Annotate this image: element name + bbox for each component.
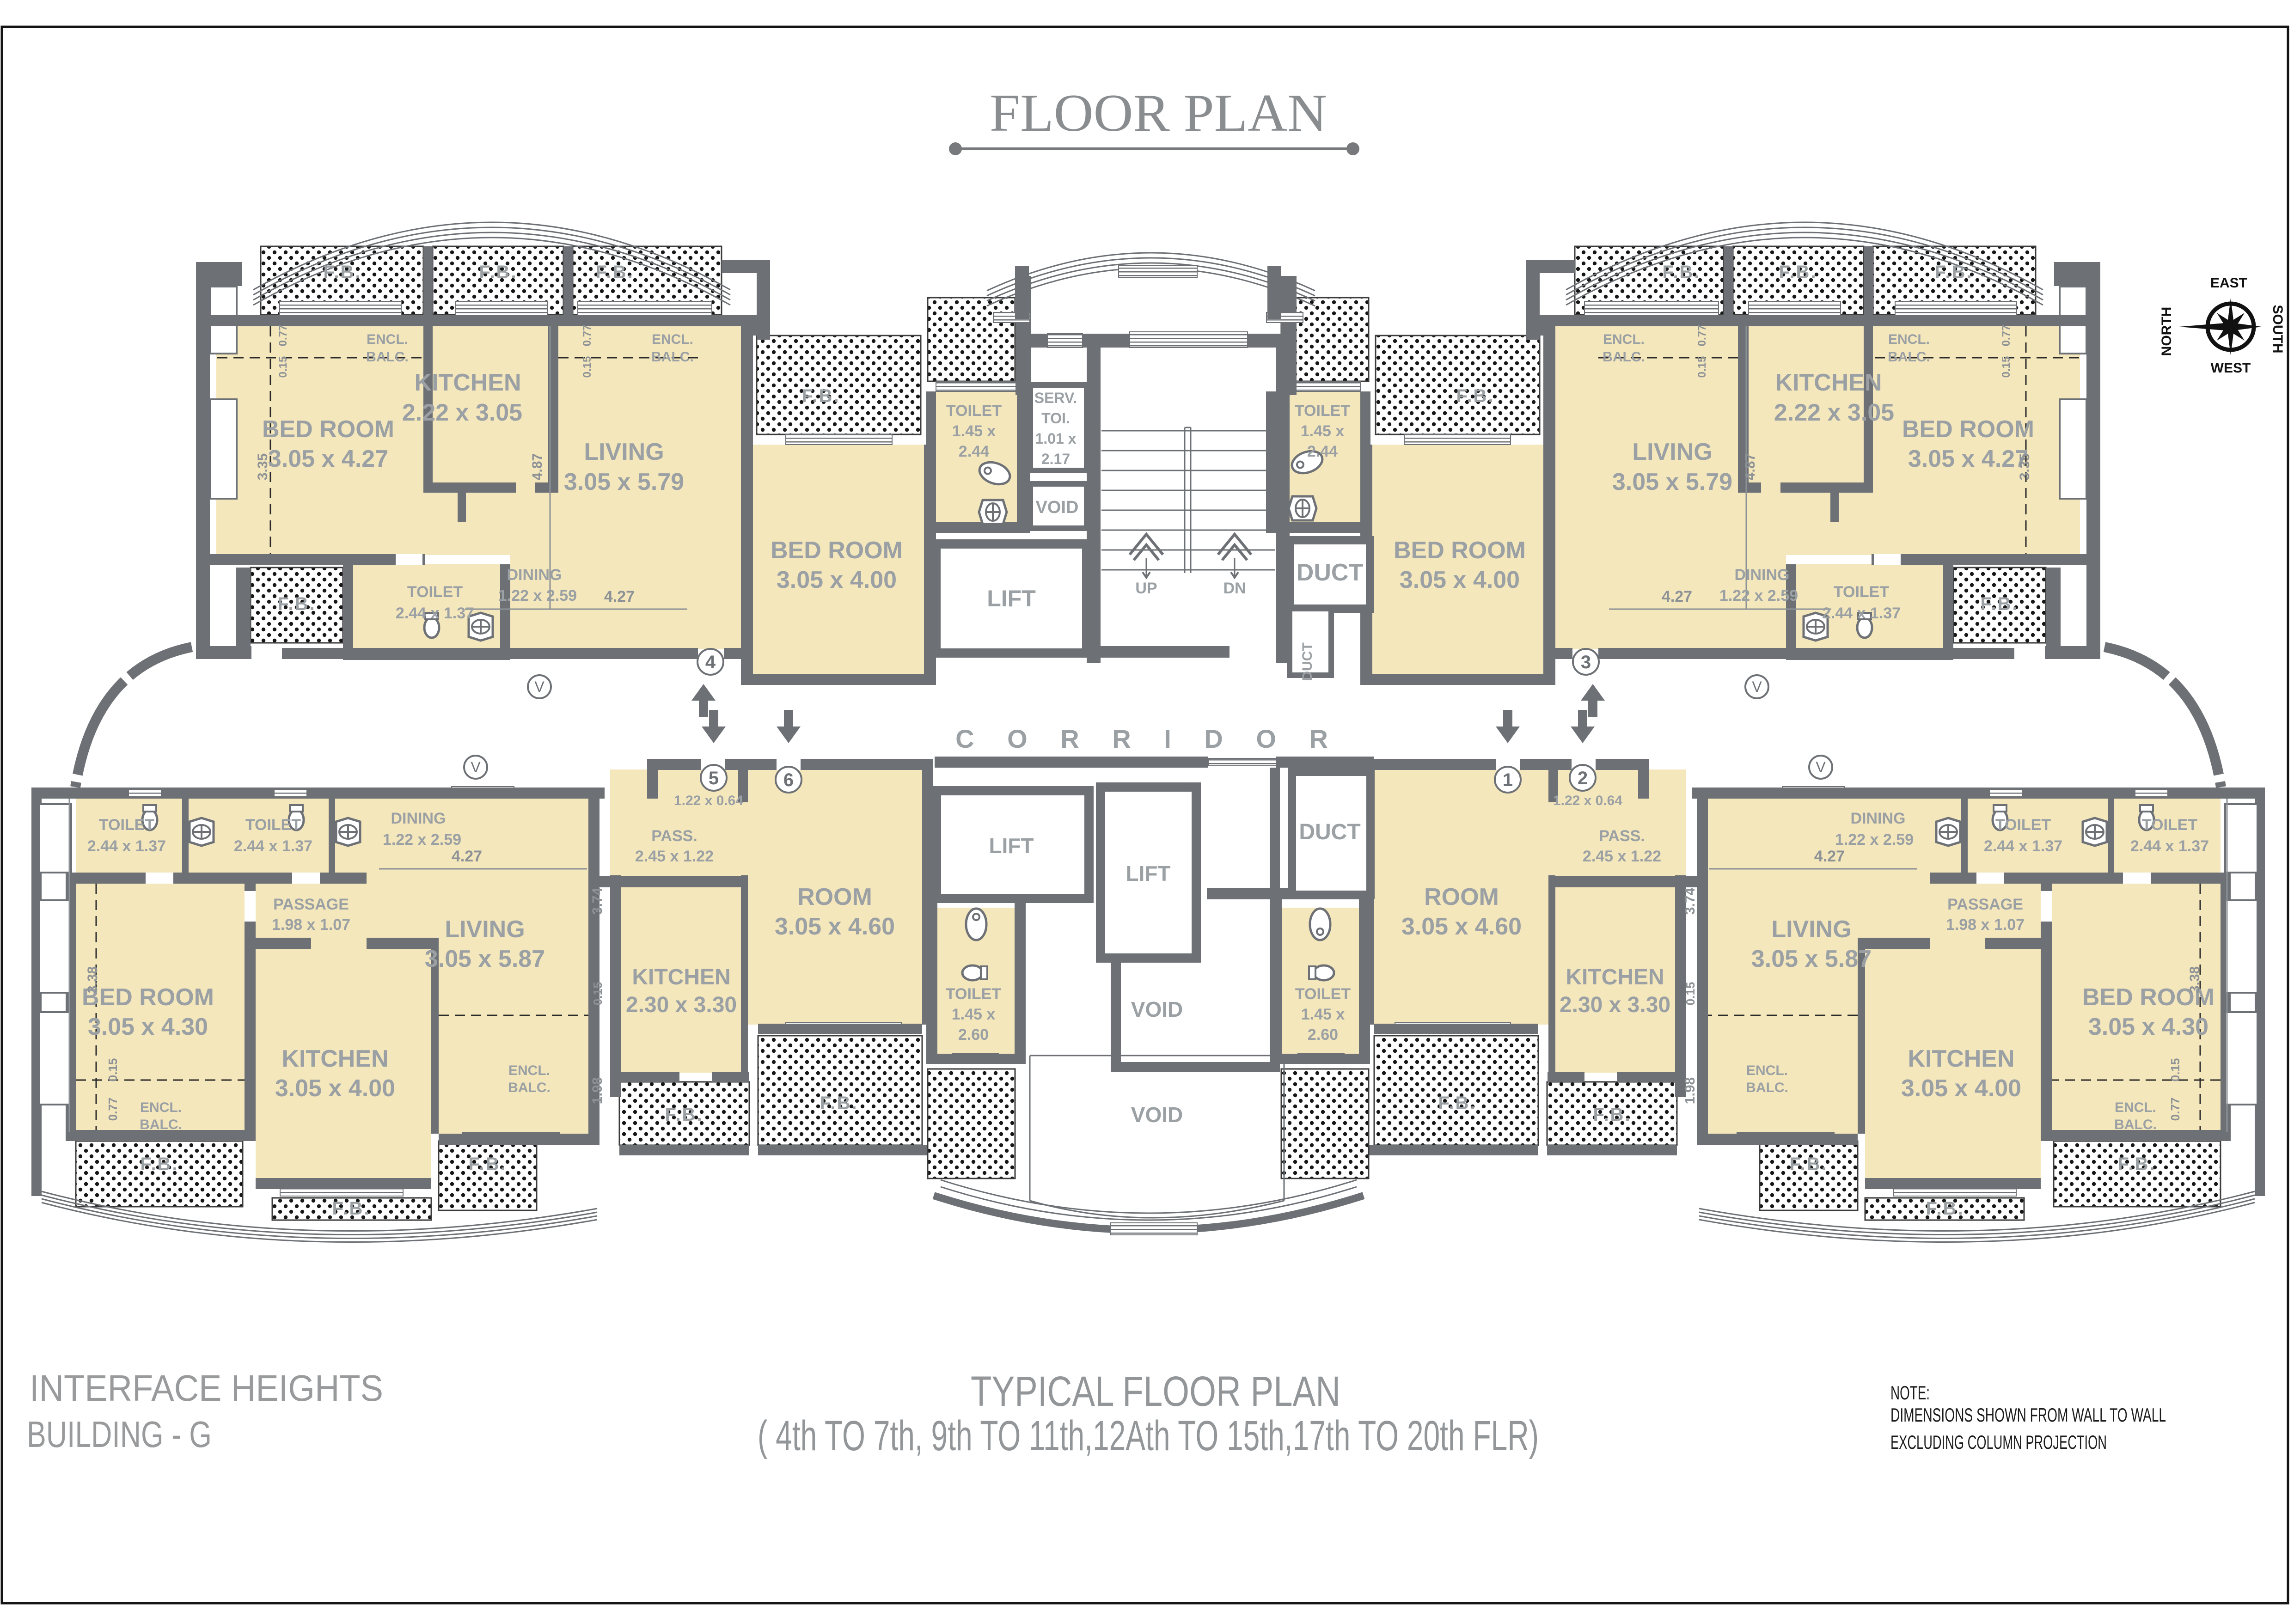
svg-text:DINING: DINING [507, 566, 562, 584]
svg-text:1.45 x: 1.45 x [952, 1006, 996, 1023]
svg-text:F.B.: F.B. [1779, 262, 1817, 282]
svg-text:0.77: 0.77 [2000, 325, 2013, 347]
svg-text:TOI.: TOI. [1041, 410, 1070, 427]
svg-text:3: 3 [1581, 652, 1591, 672]
svg-text:0.77: 0.77 [1696, 325, 1708, 347]
svg-text:DUCT: DUCT [1300, 642, 1315, 681]
svg-text:KITCHEN: KITCHEN [281, 1045, 388, 1072]
svg-text:3.05 x 4.27: 3.05 x 4.27 [268, 446, 388, 472]
svg-text:BED ROOM: BED ROOM [82, 984, 214, 1011]
svg-text:4.27: 4.27 [1662, 588, 1692, 605]
svg-text:F.B.: F.B. [277, 594, 316, 614]
svg-text:0.15: 0.15 [2168, 1058, 2182, 1082]
svg-text:VOID: VOID [1036, 498, 1079, 517]
svg-text:V: V [534, 678, 544, 695]
svg-text:BALC.: BALC. [651, 349, 694, 365]
svg-text:DINING: DINING [391, 810, 446, 827]
svg-text:LIVING: LIVING [1771, 916, 1851, 943]
svg-text:F.B.: F.B. [468, 1154, 507, 1174]
svg-text:TOILET: TOILET [1995, 816, 2051, 834]
svg-text:TOILET: TOILET [245, 816, 301, 834]
svg-text:SOUTH: SOUTH [2270, 305, 2285, 354]
svg-text:LIVING: LIVING [445, 916, 525, 943]
svg-text:0.15: 0.15 [2000, 356, 2013, 378]
svg-text:1.01 x: 1.01 x [1035, 430, 1077, 447]
svg-text:0.15: 0.15 [106, 1058, 120, 1082]
svg-text:( 4th TO 7th, 9th TO 11th,12At: ( 4th TO 7th, 9th TO 11th,12Ath TO 15th,… [758, 1412, 1539, 1459]
svg-text:1.22 x 2.59: 1.22 x 2.59 [1835, 831, 1914, 849]
svg-text:2.44 x 1.37: 2.44 x 1.37 [87, 837, 166, 855]
svg-text:BALC.: BALC. [1888, 349, 1930, 365]
svg-text:0.77: 0.77 [106, 1098, 120, 1121]
svg-text:LIVING: LIVING [584, 439, 664, 465]
svg-text:1.98 x 1.07: 1.98 x 1.07 [272, 916, 350, 934]
svg-text:2.44 x 1.37: 2.44 x 1.37 [1984, 837, 2062, 855]
svg-text:EAST: EAST [2210, 275, 2247, 291]
svg-text:F.B.: F.B. [665, 1105, 703, 1125]
svg-text:3.35: 3.35 [2017, 453, 2032, 480]
svg-text:ROOM: ROOM [797, 884, 872, 910]
svg-text:TOILET: TOILET [946, 402, 1002, 420]
svg-text:1.98: 1.98 [1682, 1077, 1698, 1104]
svg-text:TOILET: TOILET [99, 816, 154, 834]
svg-text:0.15: 0.15 [277, 356, 289, 378]
svg-text:3.38: 3.38 [2187, 966, 2202, 993]
svg-text:2.30 x 3.30: 2.30 x 3.30 [626, 993, 737, 1017]
svg-text:ROOM: ROOM [1424, 884, 1499, 910]
svg-text:V: V [471, 759, 481, 775]
svg-text:F.B.: F.B. [332, 1198, 370, 1219]
svg-text:LIVING: LIVING [1632, 439, 1712, 465]
svg-text:DUCT: DUCT [1299, 820, 1360, 844]
svg-text:TYPICAL FLOOR PLAN: TYPICAL FLOOR PLAN [971, 1368, 1340, 1415]
svg-text:BALC.: BALC. [1603, 349, 1645, 365]
svg-text:0.15: 0.15 [1683, 982, 1697, 1006]
svg-text:2.44 x 1.37: 2.44 x 1.37 [2130, 837, 2209, 855]
svg-text:ENCL.: ENCL. [1603, 332, 1645, 347]
svg-text:BED ROOM: BED ROOM [771, 537, 903, 564]
svg-text:1: 1 [1503, 770, 1513, 790]
svg-text:2.44 x 1.37: 2.44 x 1.37 [1822, 604, 1901, 622]
svg-text:BALC.: BALC. [140, 1117, 182, 1132]
svg-text:UP: UP [1135, 580, 1157, 597]
svg-text:3.05 x 4.00: 3.05 x 4.00 [777, 567, 897, 593]
svg-text:F.B.: F.B. [140, 1154, 178, 1174]
svg-text:3.05 x 4.30: 3.05 x 4.30 [88, 1013, 208, 1040]
svg-text:TOILET: TOILET [2142, 816, 2197, 834]
svg-text:BALC.: BALC. [366, 349, 409, 365]
svg-text:TOILET: TOILET [407, 583, 463, 601]
svg-text:NORTH: NORTH [2159, 307, 2174, 356]
svg-text:1.22 x 0.64: 1.22 x 0.64 [1553, 793, 1622, 808]
svg-text:LIFT: LIFT [987, 586, 1036, 611]
svg-text:F.B.: F.B. [595, 262, 634, 282]
svg-text:6: 6 [783, 770, 794, 790]
svg-text:KITCHEN: KITCHEN [414, 369, 521, 396]
svg-text:BUILDING - G: BUILDING - G [27, 1414, 212, 1455]
svg-text:3.05 x 5.87: 3.05 x 5.87 [1751, 946, 1872, 972]
svg-text:3.05 x 5.79: 3.05 x 5.79 [564, 469, 684, 495]
svg-text:1.22 x 2.59: 1.22 x 2.59 [383, 831, 461, 849]
svg-text:NOTE:: NOTE: [1890, 1382, 1930, 1404]
svg-text:2.60: 2.60 [1308, 1026, 1338, 1044]
svg-text:KITCHEN: KITCHEN [1566, 965, 1664, 989]
svg-text:F.B.: F.B. [1662, 262, 1701, 282]
svg-text:ENCL.: ENCL. [652, 332, 693, 347]
svg-text:4.27: 4.27 [452, 848, 482, 865]
svg-text:ENCL.: ENCL. [367, 332, 408, 347]
svg-text:F.B.: F.B. [820, 1093, 858, 1113]
svg-text:SERV.: SERV. [1034, 390, 1077, 406]
svg-text:5: 5 [709, 768, 719, 788]
svg-text:2.60: 2.60 [958, 1026, 989, 1044]
svg-text:1.45 x: 1.45 x [1301, 1006, 1345, 1023]
svg-text:0.15: 0.15 [591, 982, 605, 1006]
svg-text:3.35: 3.35 [255, 453, 270, 480]
svg-text:BALC.: BALC. [1746, 1080, 1788, 1095]
svg-text:WEST: WEST [2211, 360, 2251, 376]
svg-text:DIMENSIONS SHOWN FROM WALL TO: DIMENSIONS SHOWN FROM WALL TO WALL [1890, 1404, 2166, 1426]
svg-text:4.27: 4.27 [604, 588, 635, 605]
svg-text:DINING: DINING [1735, 566, 1790, 584]
svg-text:LIFT: LIFT [989, 834, 1034, 858]
svg-text:PASS.: PASS. [1599, 827, 1645, 845]
svg-text:4: 4 [705, 652, 716, 672]
svg-text:BED ROOM: BED ROOM [1394, 537, 1526, 564]
svg-text:LIFT: LIFT [1126, 861, 1170, 885]
svg-text:1.22 x 2.59: 1.22 x 2.59 [498, 587, 577, 604]
svg-text:4.27: 4.27 [1814, 848, 1845, 865]
svg-text:3.74: 3.74 [590, 887, 605, 915]
svg-text:TOILET: TOILET [1295, 985, 1351, 1003]
svg-text:2.44 x 1.37: 2.44 x 1.37 [396, 604, 474, 622]
svg-text:0.77: 0.77 [2168, 1098, 2182, 1121]
svg-text:F.B.: F.B. [1593, 1105, 1631, 1125]
svg-text:3.05 x 5.79: 3.05 x 5.79 [1612, 469, 1732, 495]
svg-text:PASS.: PASS. [651, 827, 697, 845]
svg-text:INTERFACE HEIGHTS: INTERFACE HEIGHTS [30, 1368, 383, 1409]
svg-text:TOILET: TOILET [1834, 583, 1889, 601]
svg-text:F.B.: F.B. [1934, 262, 1973, 282]
svg-text:1.45 x: 1.45 x [1301, 422, 1345, 440]
svg-text:3.05 x 4.60: 3.05 x 4.60 [775, 913, 895, 940]
svg-text:F.B.: F.B. [1456, 386, 1494, 406]
svg-text:BED ROOM: BED ROOM [262, 416, 394, 443]
svg-text:TOILET: TOILET [946, 985, 1001, 1003]
svg-text:3.05 x 4.00: 3.05 x 4.00 [1901, 1075, 2021, 1102]
svg-text:1.98 x 1.07: 1.98 x 1.07 [1946, 916, 2025, 934]
svg-text:2.22 x 3.05: 2.22 x 3.05 [1774, 399, 1894, 426]
svg-text:F.B.: F.B. [1789, 1154, 1828, 1174]
svg-text:1.98: 1.98 [590, 1077, 605, 1104]
svg-text:ENCL.: ENCL. [1746, 1063, 1788, 1078]
svg-text:4.87: 4.87 [1743, 453, 1758, 480]
svg-text:VOID: VOID [1131, 1103, 1183, 1127]
svg-text:2.45 x 1.22: 2.45 x 1.22 [635, 848, 714, 865]
svg-text:VOID: VOID [1131, 997, 1183, 1021]
svg-text:2.30 x 3.30: 2.30 x 3.30 [1560, 993, 1670, 1017]
svg-text:3.05 x 4.60: 3.05 x 4.60 [1401, 913, 1522, 940]
svg-text:3.05 x 4.30: 3.05 x 4.30 [2088, 1013, 2208, 1040]
svg-text:F.B.: F.B. [1980, 594, 2019, 614]
svg-text:F.B.: F.B. [323, 262, 361, 282]
svg-text:PASSAGE: PASSAGE [273, 896, 349, 913]
svg-text:3.74: 3.74 [1682, 887, 1698, 915]
svg-text:KITCHEN: KITCHEN [1908, 1045, 2014, 1072]
svg-text:F.B.: F.B. [479, 262, 517, 282]
svg-text:1.45 x: 1.45 x [952, 422, 996, 440]
svg-text:0.15: 0.15 [1696, 356, 1708, 378]
svg-text:F.B.: F.B. [801, 386, 840, 406]
svg-text:3.05 x 4.27: 3.05 x 4.27 [1908, 446, 2028, 472]
svg-text:BED ROOM: BED ROOM [1902, 416, 2034, 443]
svg-text:V: V [1752, 678, 1762, 695]
svg-text:2.17: 2.17 [1041, 451, 1070, 467]
svg-text:ENCL.: ENCL. [2115, 1100, 2156, 1115]
svg-text:KITCHEN: KITCHEN [1775, 369, 1882, 396]
svg-text:BALC.: BALC. [2114, 1117, 2157, 1132]
svg-text:2.45 x 1.22: 2.45 x 1.22 [1583, 848, 1661, 865]
svg-text:0.77: 0.77 [581, 325, 593, 347]
svg-text:C O R R I D O R: C O R R I D O R [955, 724, 1341, 753]
svg-text:4.87: 4.87 [530, 453, 545, 480]
svg-text:1.22 x 2.59: 1.22 x 2.59 [1719, 587, 1798, 604]
svg-text:FLOOR PLAN: FLOOR PLAN [990, 84, 1327, 143]
svg-text:F.B.: F.B. [1438, 1093, 1476, 1113]
svg-text:ENCL.: ENCL. [508, 1063, 550, 1078]
svg-text:DN: DN [1223, 580, 1246, 597]
svg-text:1.22 x 0.64: 1.22 x 0.64 [674, 793, 743, 808]
svg-text:KITCHEN: KITCHEN [632, 965, 730, 989]
svg-text:EXCLUDING COLUMN PROJECTION: EXCLUDING COLUMN PROJECTION [1890, 1431, 2107, 1453]
svg-text:BALC.: BALC. [508, 1080, 551, 1095]
svg-text:2: 2 [1578, 768, 1588, 788]
svg-text:ENCL.: ENCL. [1888, 332, 1930, 347]
svg-text:V: V [1816, 759, 1826, 775]
svg-text:DINING: DINING [1851, 810, 1906, 827]
svg-text:3.05 x 5.87: 3.05 x 5.87 [425, 946, 545, 972]
svg-text:ENCL.: ENCL. [140, 1100, 182, 1115]
svg-text:2.44: 2.44 [1307, 443, 1338, 460]
svg-text:3.05 x 4.00: 3.05 x 4.00 [275, 1075, 395, 1102]
svg-text:F.B.: F.B. [2117, 1154, 2156, 1174]
svg-text:TOILET: TOILET [1295, 402, 1350, 420]
svg-text:DUCT: DUCT [1297, 559, 1364, 586]
svg-text:3.05 x 4.00: 3.05 x 4.00 [1400, 567, 1520, 593]
svg-text:2.44 x 1.37: 2.44 x 1.37 [234, 837, 312, 855]
svg-text:0.77: 0.77 [277, 325, 289, 347]
svg-text:F.B.: F.B. [1926, 1198, 1964, 1219]
svg-text:0.15: 0.15 [581, 356, 593, 378]
svg-text:2.44: 2.44 [959, 443, 989, 460]
svg-text:PASSAGE: PASSAGE [1947, 896, 2023, 913]
svg-text:3.38: 3.38 [85, 966, 100, 993]
svg-text:2.22 x 3.05: 2.22 x 3.05 [402, 399, 522, 426]
